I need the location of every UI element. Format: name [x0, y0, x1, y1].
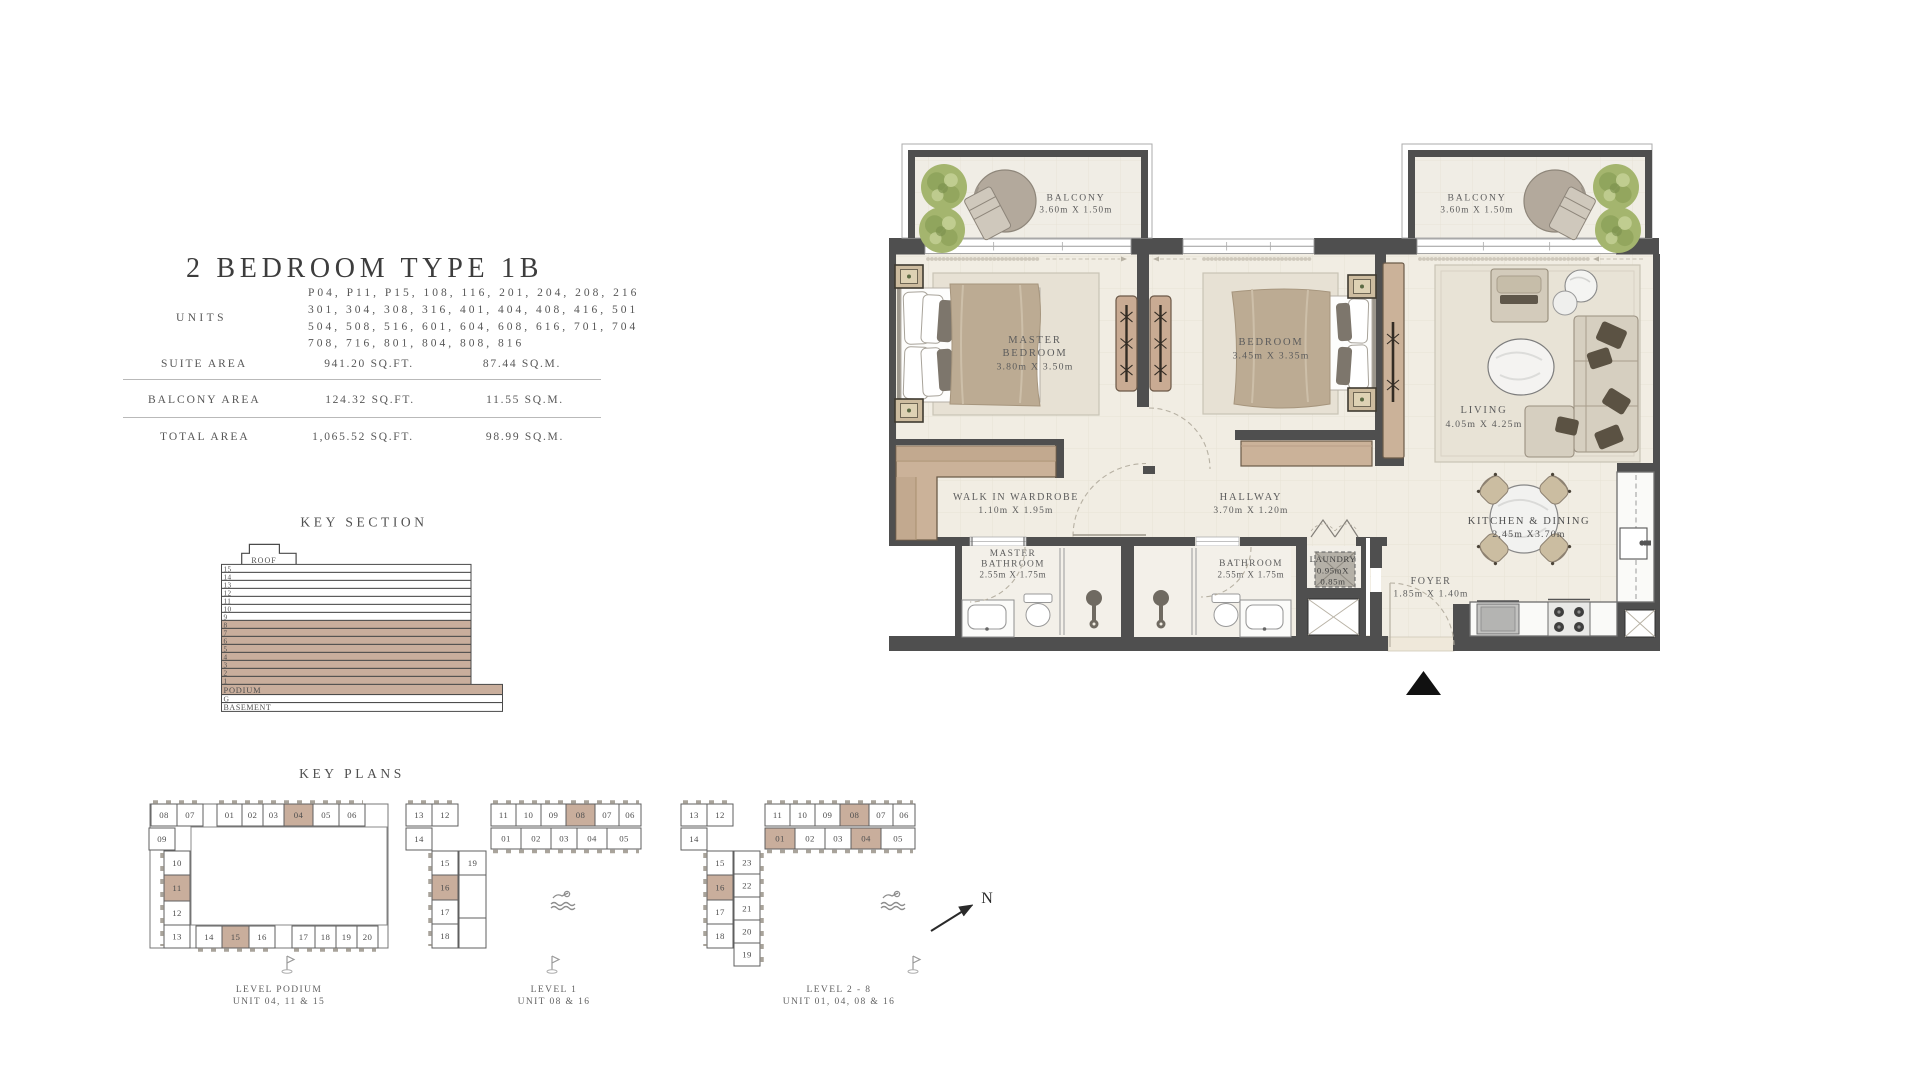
svg-text:MASTER: MASTER [1008, 335, 1061, 346]
svg-text:04: 04 [587, 834, 597, 844]
svg-text:KEY SECTION: KEY SECTION [300, 515, 427, 530]
svg-text:06: 06 [625, 810, 635, 820]
svg-text:2.55m X 1.75m: 2.55m X 1.75m [1218, 570, 1285, 580]
svg-text:06: 06 [899, 810, 909, 820]
svg-text:22: 22 [742, 881, 752, 891]
svg-text:16: 16 [440, 883, 450, 893]
svg-text:15: 15 [715, 858, 725, 868]
svg-text:LEVEL 2 - 8: LEVEL 2 - 8 [807, 985, 872, 995]
svg-text:08: 08 [576, 810, 586, 820]
svg-text:2.55m X 1.75m: 2.55m X 1.75m [980, 570, 1047, 580]
svg-text:LIVING: LIVING [1461, 405, 1508, 416]
svg-text:08: 08 [850, 810, 860, 820]
svg-text:03: 03 [833, 834, 843, 844]
svg-text:BATHROOM: BATHROOM [1219, 559, 1283, 569]
svg-text:03: 03 [269, 810, 279, 820]
svg-text:07: 07 [185, 810, 195, 820]
svg-text:4.05m X 4.25m: 4.05m X 4.25m [1445, 419, 1522, 430]
svg-text:16: 16 [257, 932, 267, 942]
svg-text:05: 05 [893, 834, 903, 844]
svg-text:01: 01 [501, 834, 511, 844]
svg-text:01: 01 [775, 834, 785, 844]
svg-text:MASTER: MASTER [990, 549, 1036, 559]
svg-text:PODIUM: PODIUM [224, 686, 262, 695]
svg-text:2,45m X3.70m: 2,45m X3.70m [1492, 529, 1565, 540]
svg-text:18: 18 [440, 931, 450, 941]
svg-text:N: N [981, 890, 993, 907]
svg-text:301, 304, 308, 316, 401, 404,: 301, 304, 308, 316, 401, 404, 408, 416, … [308, 304, 638, 316]
svg-text:02: 02 [248, 810, 258, 820]
svg-text:14: 14 [689, 834, 699, 844]
svg-text:87.44 SQ.M.: 87.44 SQ.M. [483, 358, 561, 370]
svg-text:04: 04 [294, 810, 304, 820]
svg-text:11: 11 [172, 883, 181, 893]
svg-text:02: 02 [805, 834, 815, 844]
svg-text:3.60m X 1.50m: 3.60m X 1.50m [1440, 205, 1513, 215]
svg-text:BEDROOM: BEDROOM [1238, 337, 1303, 348]
svg-text:TOTAL AREA: TOTAL AREA [160, 431, 250, 443]
svg-text:11.55 SQ.M.: 11.55 SQ.M. [486, 394, 564, 406]
svg-text:P04, P11, P15, 108, 116, 201,: P04, P11, P15, 108, 116, 201, 204, 208, … [308, 287, 639, 299]
svg-text:FOYER: FOYER [1411, 576, 1452, 587]
svg-text:941.20 SQ.FT.: 941.20 SQ.FT. [324, 358, 414, 370]
svg-text:UNIT 08 & 16: UNIT 08 & 16 [518, 997, 591, 1007]
svg-text:LAUNDRY: LAUNDRY [1310, 554, 1357, 564]
svg-text:09: 09 [823, 810, 833, 820]
svg-text:KEY PLANS: KEY PLANS [299, 766, 405, 781]
svg-text:KITCHEN & DINING: KITCHEN & DINING [1468, 516, 1590, 527]
svg-text:07: 07 [602, 810, 612, 820]
svg-text:19: 19 [742, 950, 752, 960]
svg-text:98.99 SQ.M.: 98.99 SQ.M. [486, 431, 564, 443]
svg-text:14: 14 [204, 932, 214, 942]
svg-text:09: 09 [157, 834, 167, 844]
svg-text:BEDROOM: BEDROOM [1002, 348, 1067, 359]
svg-text:03: 03 [559, 834, 569, 844]
svg-text:02: 02 [531, 834, 541, 844]
svg-text:13: 13 [414, 810, 424, 820]
svg-text:07: 07 [876, 810, 886, 820]
svg-text:2 BEDROOM TYPE 1B: 2 BEDROOM TYPE 1B [186, 253, 543, 284]
svg-text:3.70m X 1.20m: 3.70m X 1.20m [1213, 506, 1288, 516]
svg-text:12: 12 [715, 810, 725, 820]
svg-text:BALCONY: BALCONY [1047, 193, 1106, 204]
svg-text:04: 04 [861, 834, 871, 844]
svg-text:19: 19 [468, 858, 478, 868]
svg-text:09: 09 [549, 810, 559, 820]
svg-text:WALK IN WARDROBE: WALK IN WARDROBE [953, 492, 1079, 503]
svg-text:UNIT 04, 11 & 15: UNIT 04, 11 & 15 [233, 997, 325, 1007]
svg-text:504, 508, 516, 601, 604, 608,: 504, 508, 516, 601, 604, 608, 616, 701, … [308, 321, 638, 333]
svg-text:HALLWAY: HALLWAY [1220, 492, 1283, 503]
svg-text:UNITS: UNITS [176, 312, 227, 324]
svg-text:BALCONY AREA: BALCONY AREA [148, 394, 261, 406]
svg-text:10: 10 [172, 858, 182, 868]
svg-text:1,065.52 SQ.FT.: 1,065.52 SQ.FT. [312, 431, 414, 443]
svg-text:18: 18 [321, 932, 331, 942]
svg-text:BASEMENT: BASEMENT [224, 703, 272, 712]
svg-text:12: 12 [440, 810, 450, 820]
svg-text:10: 10 [524, 810, 534, 820]
svg-text:1.10m X 1.95m: 1.10m X 1.95m [978, 506, 1053, 516]
svg-text:124.32 SQ.FT.: 124.32 SQ.FT. [325, 394, 415, 406]
svg-text:15: 15 [231, 932, 241, 942]
svg-text:17: 17 [299, 932, 309, 942]
svg-text:06: 06 [347, 810, 357, 820]
svg-text:05: 05 [321, 810, 331, 820]
svg-text:12: 12 [172, 908, 182, 918]
svg-text:10: 10 [798, 810, 808, 820]
svg-text:3.45m X 3.35m: 3.45m X 3.35m [1232, 351, 1309, 362]
svg-text:16: 16 [715, 883, 725, 893]
svg-text:20: 20 [742, 927, 752, 937]
svg-text:15: 15 [440, 858, 450, 868]
svg-text:13: 13 [689, 810, 699, 820]
svg-text:3.80m X 3.50m: 3.80m X 3.50m [996, 362, 1073, 373]
svg-text:08: 08 [159, 810, 169, 820]
svg-text:BALCONY: BALCONY [1448, 193, 1507, 204]
svg-text:14: 14 [414, 834, 424, 844]
svg-text:11: 11 [773, 810, 782, 820]
svg-text:708, 716, 801, 804, 808, 816: 708, 716, 801, 804, 808, 816 [308, 338, 524, 350]
svg-text:3.60m X 1.50m: 3.60m X 1.50m [1039, 205, 1112, 215]
svg-text:11: 11 [499, 810, 508, 820]
svg-text:17: 17 [715, 907, 725, 917]
svg-text:05: 05 [619, 834, 629, 844]
svg-text:ROOF: ROOF [251, 556, 276, 565]
svg-text:0.95mX: 0.95mX [1317, 566, 1349, 576]
svg-text:SUITE AREA: SUITE AREA [161, 358, 247, 370]
svg-text:20: 20 [363, 932, 373, 942]
svg-text:BATHROOM: BATHROOM [981, 560, 1045, 570]
svg-text:17: 17 [440, 907, 450, 917]
svg-text:LEVEL 1: LEVEL 1 [531, 985, 578, 995]
svg-text:18: 18 [715, 931, 725, 941]
svg-text:23: 23 [742, 858, 752, 868]
svg-text:UNIT 01, 04, 08 & 16: UNIT 01, 04, 08 & 16 [783, 997, 896, 1007]
svg-text:01: 01 [225, 810, 235, 820]
svg-text:13: 13 [172, 932, 182, 942]
svg-text:LEVEL PODIUM: LEVEL PODIUM [236, 985, 322, 995]
svg-text:21: 21 [742, 904, 752, 914]
svg-text:0.85m: 0.85m [1320, 577, 1345, 587]
svg-text:19: 19 [342, 932, 352, 942]
